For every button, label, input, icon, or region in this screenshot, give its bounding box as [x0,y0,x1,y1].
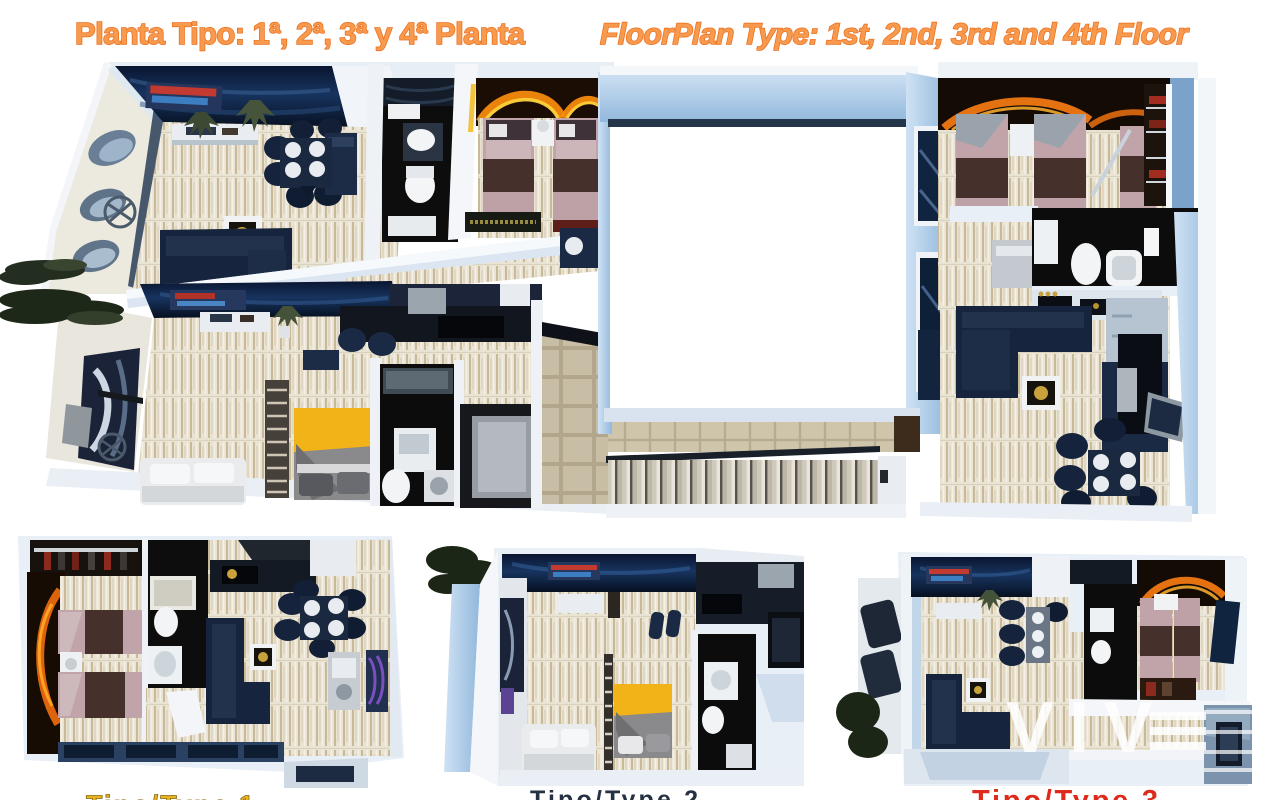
svg-text:Planta Tipo: 1ª, 2ª, 3ª y 4ª P: Planta Tipo: 1ª, 2ª, 3ª y 4ª Planta [75,16,526,51]
svg-text:Tipo/Type 3: Tipo/Type 3 [972,785,1158,800]
svg-text:FloorPlan Type: 1st, 2nd, 3rd: FloorPlan Type: 1st, 2nd, 3rd and 4th Fl… [600,18,1190,51]
svg-text:VIV: VIV [1006,688,1152,768]
svg-text:Tipo/Type 1: Tipo/Type 1 [86,790,254,800]
